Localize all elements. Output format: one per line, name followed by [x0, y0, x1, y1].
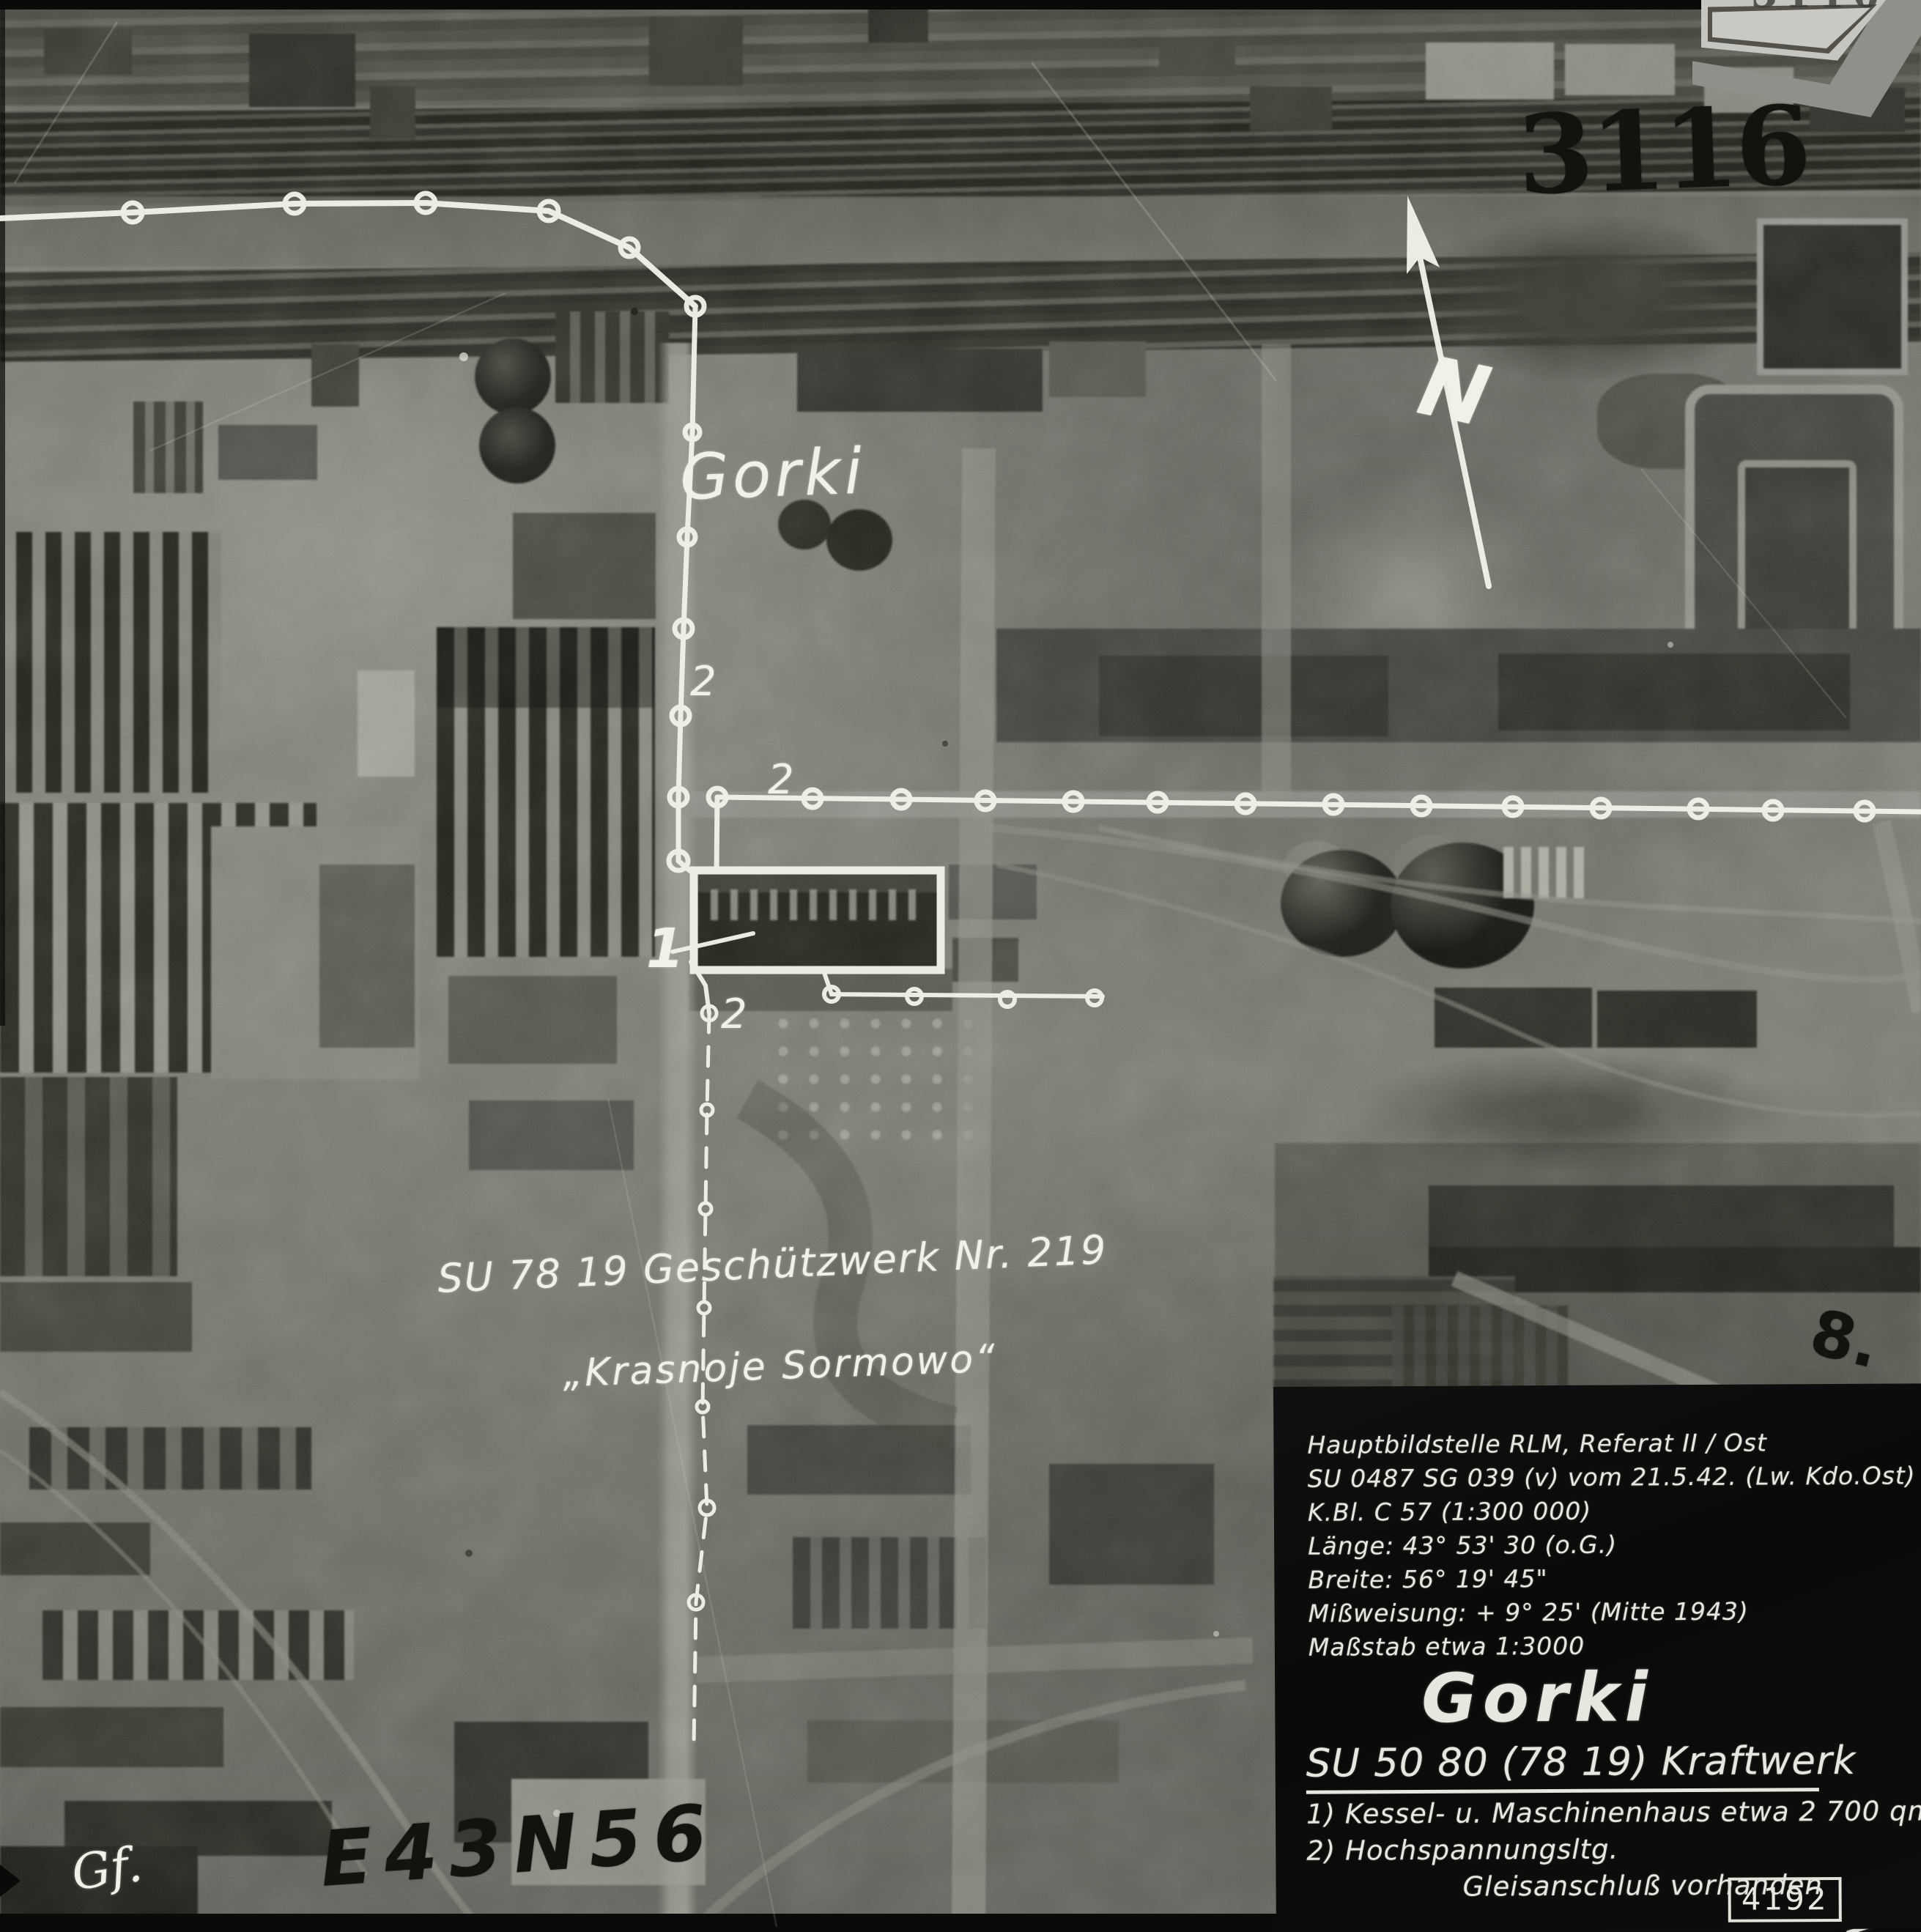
panel-line-latitude: Breite: 56° 19' 45" [1308, 1560, 1921, 1596]
panel-line-unit: Hauptbildstelle RLM, Referat II / Ost [1307, 1383, 1921, 1462]
power-line-nodes [123, 193, 1873, 870]
aerial-photo: N Gorki SU 78 19 Geschützwerk Nr. 219 „K… [0, 0, 1921, 1932]
plaque-partial-number: 3116 [1751, 0, 1887, 12]
corner-signature: Gf. [68, 1836, 146, 1902]
target-leader [673, 933, 753, 952]
info-panel: Hauptbildstelle RLM, Referat II / Ost SU… [1273, 1383, 1921, 1932]
panel-title: Gorki [1421, 1662, 1921, 1733]
panel-item-1: 1) Kessel- u. Maschinenhaus etwa 2 700 q… [1306, 1795, 1921, 1830]
frame-number-stamp: 3116 [1516, 81, 1810, 219]
panel-line-declination: Mißweisung: + 9° 25' (Mitte 1943) [1309, 1594, 1921, 1630]
place-label: Gorki [678, 435, 867, 515]
panel-footer: Gleisanschluß vorhanden [1462, 1868, 1921, 1902]
target-box [694, 870, 941, 970]
marker-2-road: 2 [768, 756, 794, 804]
panel-line-sortie: SU 0487 SG 039 (v) vom 21.5.42. (Lw. Kdo… [1308, 1459, 1921, 1495]
power-line-top [0, 203, 695, 306]
panel-ref-number: 4192 [1728, 1877, 1842, 1922]
marker-2-upper: 2 [690, 658, 717, 706]
marker-1: 1 [646, 917, 684, 980]
panel-item-2: 2) Hochspannungsltg. [1306, 1832, 1921, 1867]
power-line-south-nodes [689, 1006, 717, 1610]
panel-line-longitude: Länge: 43° 53' 30 (o.G.) [1308, 1526, 1921, 1563]
corner-plaque-number: 3116 [1744, 0, 1890, 12]
panel-line-mapsheet: K.Bl. C 57 (1:300 000) [1308, 1492, 1921, 1529]
panel-subtitle: SU 50 80 (78 19) Kraftwerk [1306, 1741, 1819, 1794]
marker-2-lower: 2 [721, 991, 747, 1038]
